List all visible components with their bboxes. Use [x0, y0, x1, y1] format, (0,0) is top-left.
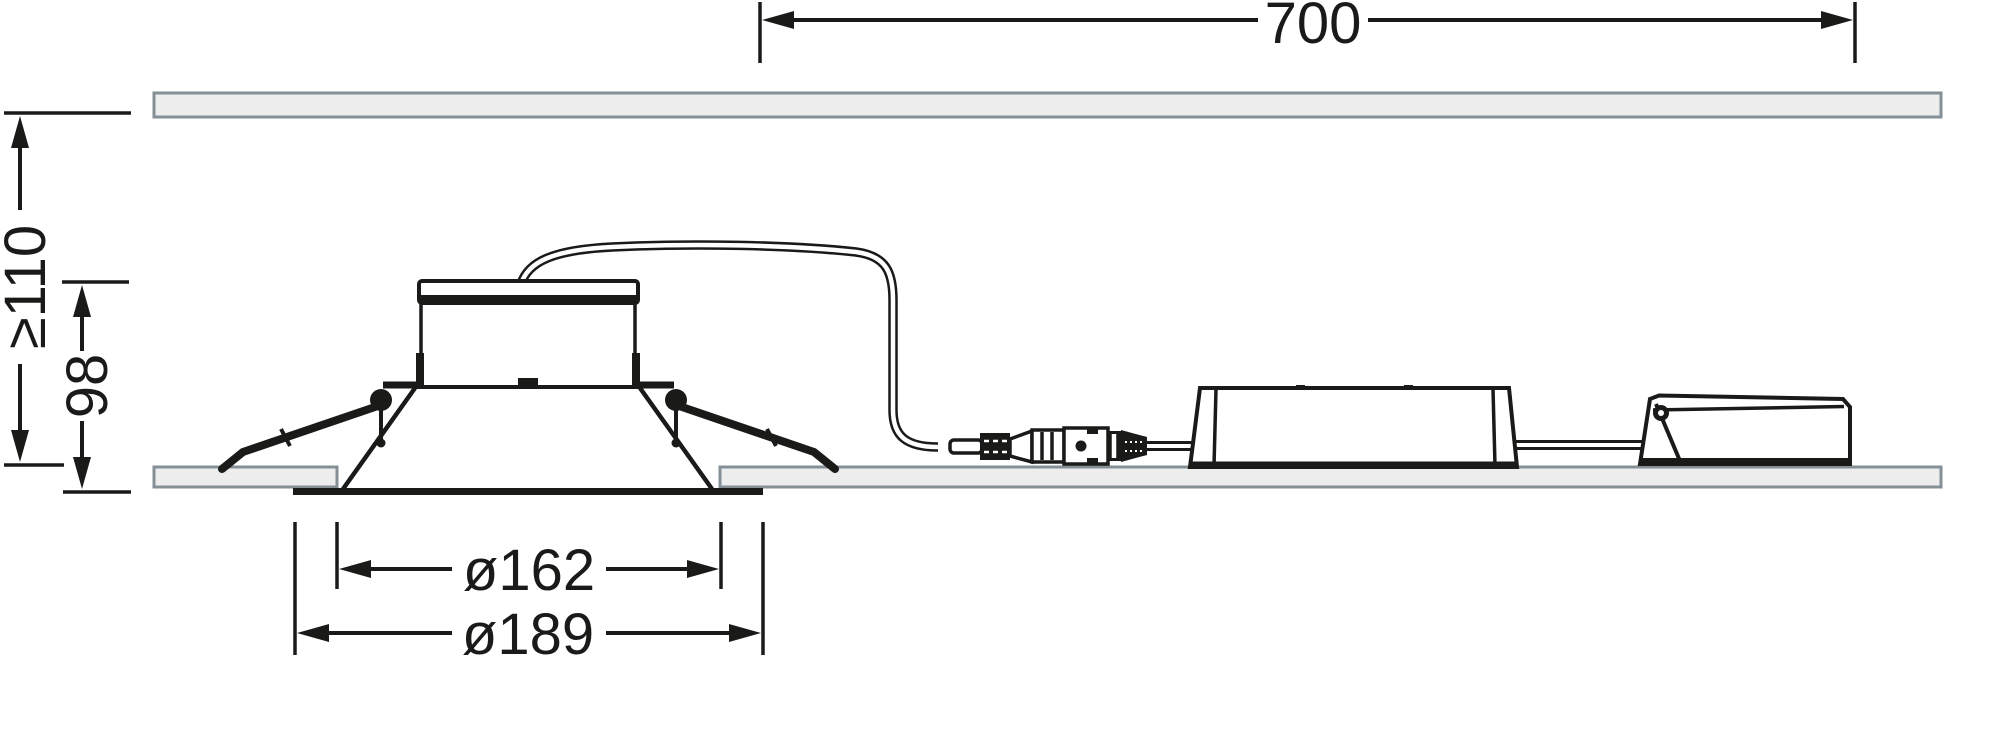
- clip-mount-left: [416, 353, 424, 386]
- socket-pin-dot: [1076, 441, 1087, 452]
- driver-top-tab: [1404, 385, 1413, 390]
- plug-neck: [1010, 431, 1032, 462]
- terminal-box-screw-center: [1658, 410, 1664, 416]
- arrowhead-left: [762, 11, 794, 29]
- downlight-body: [421, 303, 635, 387]
- clip-mount-right: [632, 353, 640, 386]
- downlight: [222, 281, 835, 489]
- latch-clip-top: [1087, 428, 1098, 434]
- strain-relief-boot: [1121, 430, 1147, 462]
- plug-pigtail: [950, 440, 982, 453]
- ceiling-slab-panel: [154, 93, 1941, 117]
- arrowhead-left: [339, 560, 371, 578]
- dimension-162-label: ø162: [463, 538, 595, 603]
- plug-connector: [950, 428, 1147, 464]
- downlight-trim-flange: [293, 488, 763, 495]
- arrowhead-up: [11, 116, 29, 148]
- spring-pin-ball: [672, 439, 681, 448]
- dimension-98-label: 98: [55, 354, 120, 419]
- dimension-700-label: 700: [1265, 0, 1362, 56]
- latch-clip-bottom: [1087, 458, 1098, 464]
- driver-top-tab: [1296, 385, 1305, 390]
- dimension-fixture-height: 98: [55, 282, 131, 492]
- cap-band: [420, 295, 637, 303]
- driver-endcap-seam-right: [1493, 389, 1495, 466]
- arrowhead-right: [729, 624, 761, 642]
- dimension-189-label: ø189: [462, 602, 594, 667]
- spring-clip-right: [634, 385, 835, 469]
- plug-ribbed-body: [980, 433, 1010, 460]
- driver-housing: [1190, 388, 1517, 467]
- suspended-ceiling-right-panel: [720, 467, 1941, 487]
- arrowhead-right: [1821, 11, 1853, 29]
- arrowhead-up: [73, 285, 91, 317]
- arrowhead-down: [73, 457, 91, 489]
- junction-tab: [518, 378, 538, 385]
- arrowhead-down: [11, 430, 29, 462]
- arrowhead-right: [687, 560, 719, 578]
- coupler-body: [1032, 430, 1064, 462]
- spring-arm: [682, 407, 835, 469]
- dimension-cutout-diameter: ø162: [337, 522, 721, 603]
- arrowhead-left: [297, 624, 329, 642]
- suspended-ceiling-left-panel: [154, 467, 337, 487]
- spring-pin-ball: [377, 439, 386, 448]
- led-driver-box: [1190, 385, 1517, 467]
- driver-endcap-seam-left: [1214, 389, 1216, 466]
- ceiling-slab: [154, 93, 1941, 117]
- downlight-installation-diagram: 700 ≥110 98 ø162 ø189: [0, 0, 2000, 751]
- dimension-110-label: ≥110: [0, 225, 58, 349]
- terminal-box: [1640, 396, 1850, 465]
- spring-arm: [222, 407, 375, 469]
- spring-clip-left: [222, 385, 423, 469]
- suspended-ceiling: [154, 467, 1941, 487]
- dimension-drawing-canvas: 700 ≥110 98 ø162 ø189: [0, 0, 2000, 751]
- dimension-700: 700: [760, 0, 1855, 63]
